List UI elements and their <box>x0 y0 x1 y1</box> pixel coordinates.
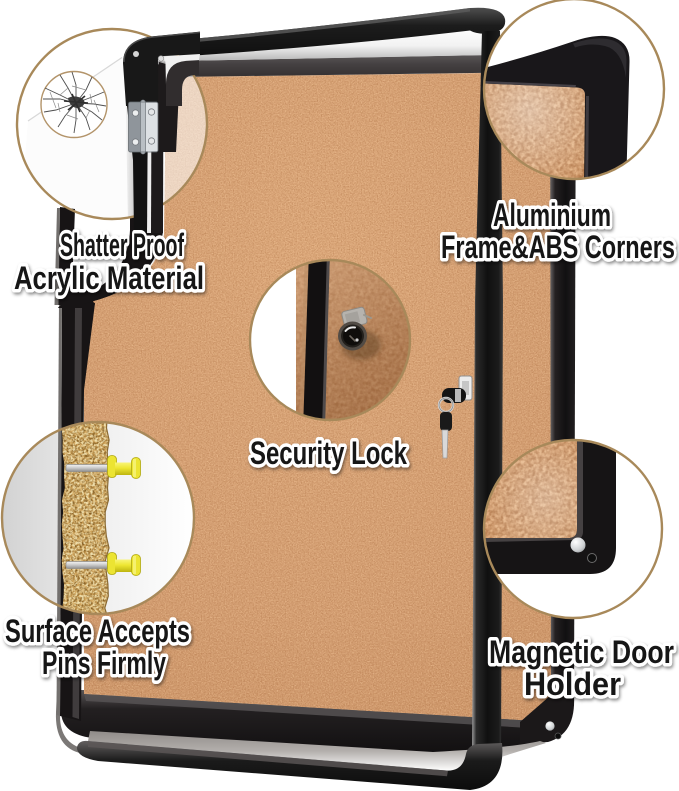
svg-text:Acrylic Material: Acrylic Material <box>14 260 204 296</box>
svg-text:Pins Firmly: Pins Firmly <box>42 645 166 681</box>
svg-text:Magnetic Door: Magnetic Door <box>489 634 674 670</box>
svg-text:Frame&ABS Corners: Frame&ABS Corners <box>441 229 675 265</box>
svg-text:Surface Accepts: Surface Accepts <box>5 613 190 649</box>
svg-text:Holder: Holder <box>524 666 621 702</box>
svg-text:Security Lock: Security Lock <box>250 435 407 471</box>
svg-text:Aluminium: Aluminium <box>493 197 611 233</box>
svg-text:Shatter Proof: Shatter Proof <box>60 227 184 263</box>
